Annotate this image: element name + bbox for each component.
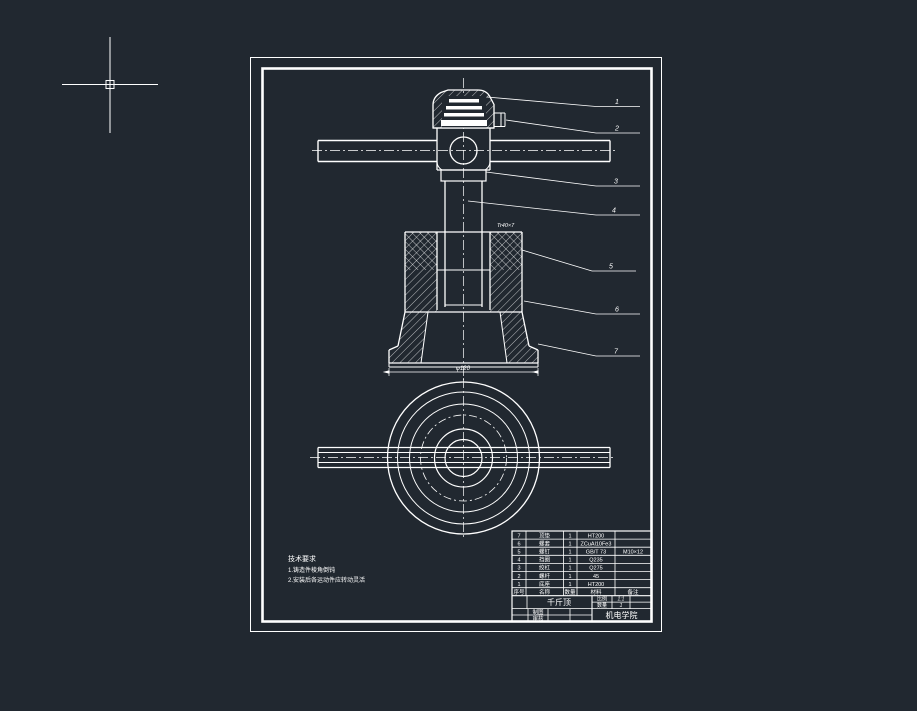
svg-text:1: 1 <box>615 99 619 106</box>
svg-text:底座: 底座 <box>539 580 551 588</box>
svg-text:5: 5 <box>517 550 520 556</box>
table-row: 6 螺套 1 ZCuAl10Fe3 <box>517 539 611 547</box>
technical-notes: 技术要求 1.铸造件棱角倒钝 2.安装后各运动件应转动灵活 <box>288 554 365 584</box>
part-title: 千斤顶 <box>547 597 571 607</box>
svg-text:HT200: HT200 <box>588 582 605 588</box>
svg-text:1: 1 <box>568 558 571 564</box>
top-view <box>310 378 616 538</box>
svg-text:GB/T 73: GB/T 73 <box>586 550 606 556</box>
bom-header-row: 序号 名称 数量 材料 备注 <box>513 588 639 596</box>
scale-value: 1:1 <box>618 597 625 603</box>
svg-text:螺杆: 螺杆 <box>539 572 551 580</box>
svg-text:螺钉: 螺钉 <box>539 548 551 556</box>
svg-text:ZCuAl10Fe3: ZCuAl10Fe3 <box>581 541 612 547</box>
front-view: Tr40×7 <box>312 78 616 380</box>
crosshair-cursor <box>62 37 158 133</box>
svg-text:6: 6 <box>517 541 520 547</box>
svg-text:HT200: HT200 <box>588 533 605 539</box>
svg-text:4: 4 <box>612 208 616 215</box>
svg-text:Q275: Q275 <box>589 566 602 572</box>
handle-bar <box>318 141 610 162</box>
balloon-5: 5 <box>522 250 636 271</box>
svg-text:材料: 材料 <box>590 588 602 596</box>
svg-text:1: 1 <box>517 582 520 588</box>
svg-text:名称: 名称 <box>539 588 551 596</box>
balloon-4: 4 <box>468 201 640 215</box>
svg-text:1: 1 <box>568 541 571 547</box>
set-screw <box>494 113 505 127</box>
qty-label: 数量 <box>597 602 607 609</box>
svg-text:2: 2 <box>517 574 520 580</box>
notes-title: 技术要求 <box>288 554 316 563</box>
svg-text:数量: 数量 <box>564 588 576 596</box>
balloon-2: 2 <box>506 120 640 133</box>
svg-text:挡圈: 挡圈 <box>539 556 551 564</box>
svg-text:5: 5 <box>609 264 613 271</box>
org-name: 机电学院 <box>606 610 638 620</box>
svg-text:1: 1 <box>568 550 571 556</box>
svg-text:螺套: 螺套 <box>539 539 551 547</box>
svg-text:3: 3 <box>614 179 618 186</box>
balloon-callouts: 1 2 3 4 5 6 7 <box>468 97 640 356</box>
drawing-canvas[interactable]: Tr40×7 <box>0 0 917 711</box>
scale-label: 比例 <box>597 596 607 603</box>
svg-text:7: 7 <box>614 349 619 356</box>
svg-text:序号: 序号 <box>513 588 525 596</box>
qty-value: 1 <box>620 603 623 609</box>
table-row: 2 螺杆 1 45 <box>517 572 599 580</box>
svg-text:M10×12: M10×12 <box>623 550 643 556</box>
checked-label: 审核 <box>532 614 544 622</box>
drawn-label: 制图 <box>532 608 544 616</box>
svg-text:1: 1 <box>568 582 571 588</box>
svg-text:2: 2 <box>614 126 619 133</box>
note-item-2: 2.安装后各运动件应转动灵活 <box>288 576 365 584</box>
balloon-7: 7 <box>538 344 640 356</box>
base-diameter-dim: φ120 <box>456 366 471 372</box>
cad-model-space[interactable]: Tr40×7 <box>0 0 917 711</box>
table-row: 7 顶垫 1 HT200 <box>517 531 604 539</box>
balloon-3: 3 <box>486 172 640 186</box>
svg-text:Q235: Q235 <box>589 558 602 564</box>
svg-text:6: 6 <box>615 307 619 314</box>
balloon-1: 1 <box>487 97 640 107</box>
svg-text:7: 7 <box>517 533 520 539</box>
note-item-1: 1.铸造件棱角倒钝 <box>288 566 335 574</box>
table-row: 5 螺钉 1 GB/T 73 M10×12 <box>517 548 643 556</box>
svg-text:4: 4 <box>517 558 520 564</box>
svg-text:备注: 备注 <box>627 588 639 596</box>
svg-text:3: 3 <box>517 566 520 572</box>
balloon-6: 6 <box>524 301 640 314</box>
cap-part <box>433 90 494 128</box>
table-row: 1 底座 1 HT200 <box>517 580 604 588</box>
svg-text:顶垫: 顶垫 <box>539 531 551 539</box>
svg-text:绞杠: 绞杠 <box>539 564 551 572</box>
table-row: 3 绞杠 1 Q275 <box>517 564 602 572</box>
parts-table: 7 顶垫 1 HT200 6 螺套 1 ZCuAl10Fe3 5 螺钉 1 GB… <box>512 531 652 622</box>
svg-text:1: 1 <box>568 566 571 572</box>
thread-callout: Tr40×7 <box>497 223 515 229</box>
svg-text:1: 1 <box>568 533 571 539</box>
svg-text:45: 45 <box>593 574 599 580</box>
table-row: 4 挡圈 1 Q235 <box>517 556 602 564</box>
svg-text:1: 1 <box>568 574 571 580</box>
